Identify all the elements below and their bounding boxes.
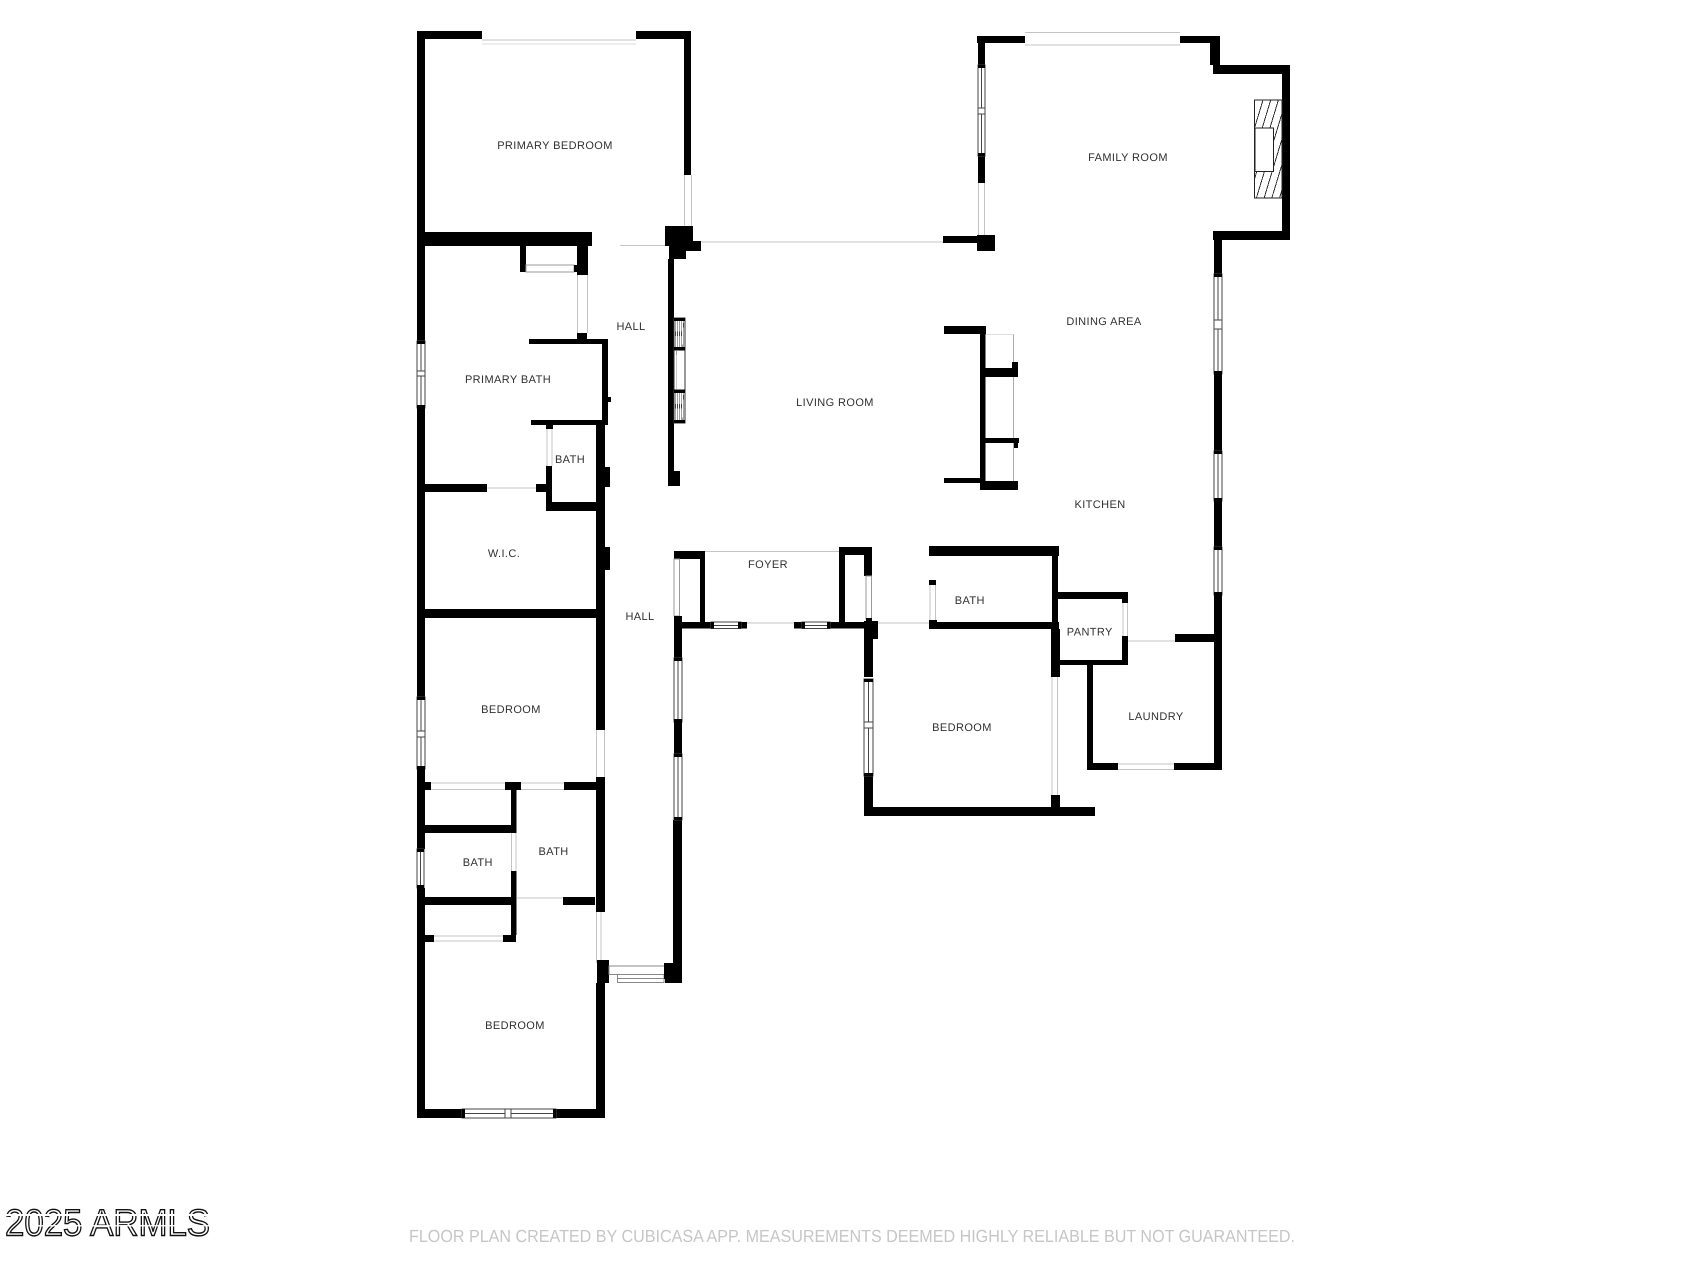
svg-text:BATH: BATH	[555, 454, 585, 466]
svg-text:BATH: BATH	[539, 846, 569, 858]
svg-text:KITCHEN: KITCHEN	[1074, 499, 1125, 511]
svg-text:FOYER: FOYER	[748, 559, 788, 571]
svg-text:HALL: HALL	[616, 321, 645, 333]
svg-text:PANTRY: PANTRY	[1067, 627, 1113, 639]
svg-text:BEDROOM: BEDROOM	[481, 704, 541, 716]
svg-text:HALL: HALL	[625, 611, 654, 623]
svg-text:BEDROOM: BEDROOM	[485, 1020, 545, 1032]
svg-text:FAMILY ROOM: FAMILY ROOM	[1088, 152, 1168, 164]
svg-text:BEDROOM: BEDROOM	[932, 722, 992, 734]
svg-text:PRIMARY BEDROOM: PRIMARY BEDROOM	[497, 140, 613, 152]
svg-text:LAUNDRY: LAUNDRY	[1128, 711, 1183, 723]
svg-text:BATH: BATH	[955, 595, 985, 607]
svg-text:LIVING ROOM: LIVING ROOM	[796, 397, 874, 409]
svg-text:PRIMARY BATH: PRIMARY BATH	[465, 374, 551, 386]
svg-text:FLOOR PLAN CREATED BY CUBICASA: FLOOR PLAN CREATED BY CUBICASA APP. MEAS…	[409, 1226, 1295, 1246]
svg-text:W.I.C.: W.I.C.	[488, 548, 520, 560]
svg-text:DINING AREA: DINING AREA	[1066, 316, 1142, 328]
svg-text:BATH: BATH	[463, 857, 493, 869]
svg-text:2025 ARMLS: 2025 ARMLS	[5, 1202, 210, 1244]
